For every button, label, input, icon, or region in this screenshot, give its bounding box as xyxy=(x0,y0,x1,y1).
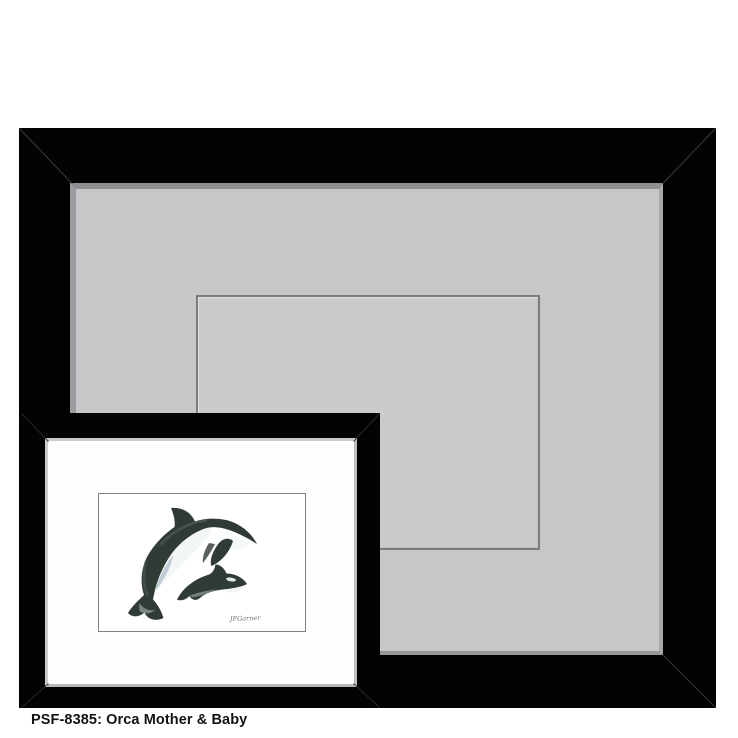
mother-orca-pectoral-fin xyxy=(211,539,233,566)
baby-orca-body xyxy=(177,565,247,601)
artist-signature: JFGarner xyxy=(228,614,262,623)
product-caption: PSF-8385: Orca Mother & Baby xyxy=(31,712,451,732)
page-background: JFGarner PSF-8385: Orca Mother & Baby xyxy=(0,0,738,738)
orca-artwork: JFGarner xyxy=(98,493,306,632)
orca-painting: JFGarner xyxy=(99,494,305,631)
baby-orca xyxy=(177,565,247,601)
mother-orca xyxy=(128,508,257,620)
